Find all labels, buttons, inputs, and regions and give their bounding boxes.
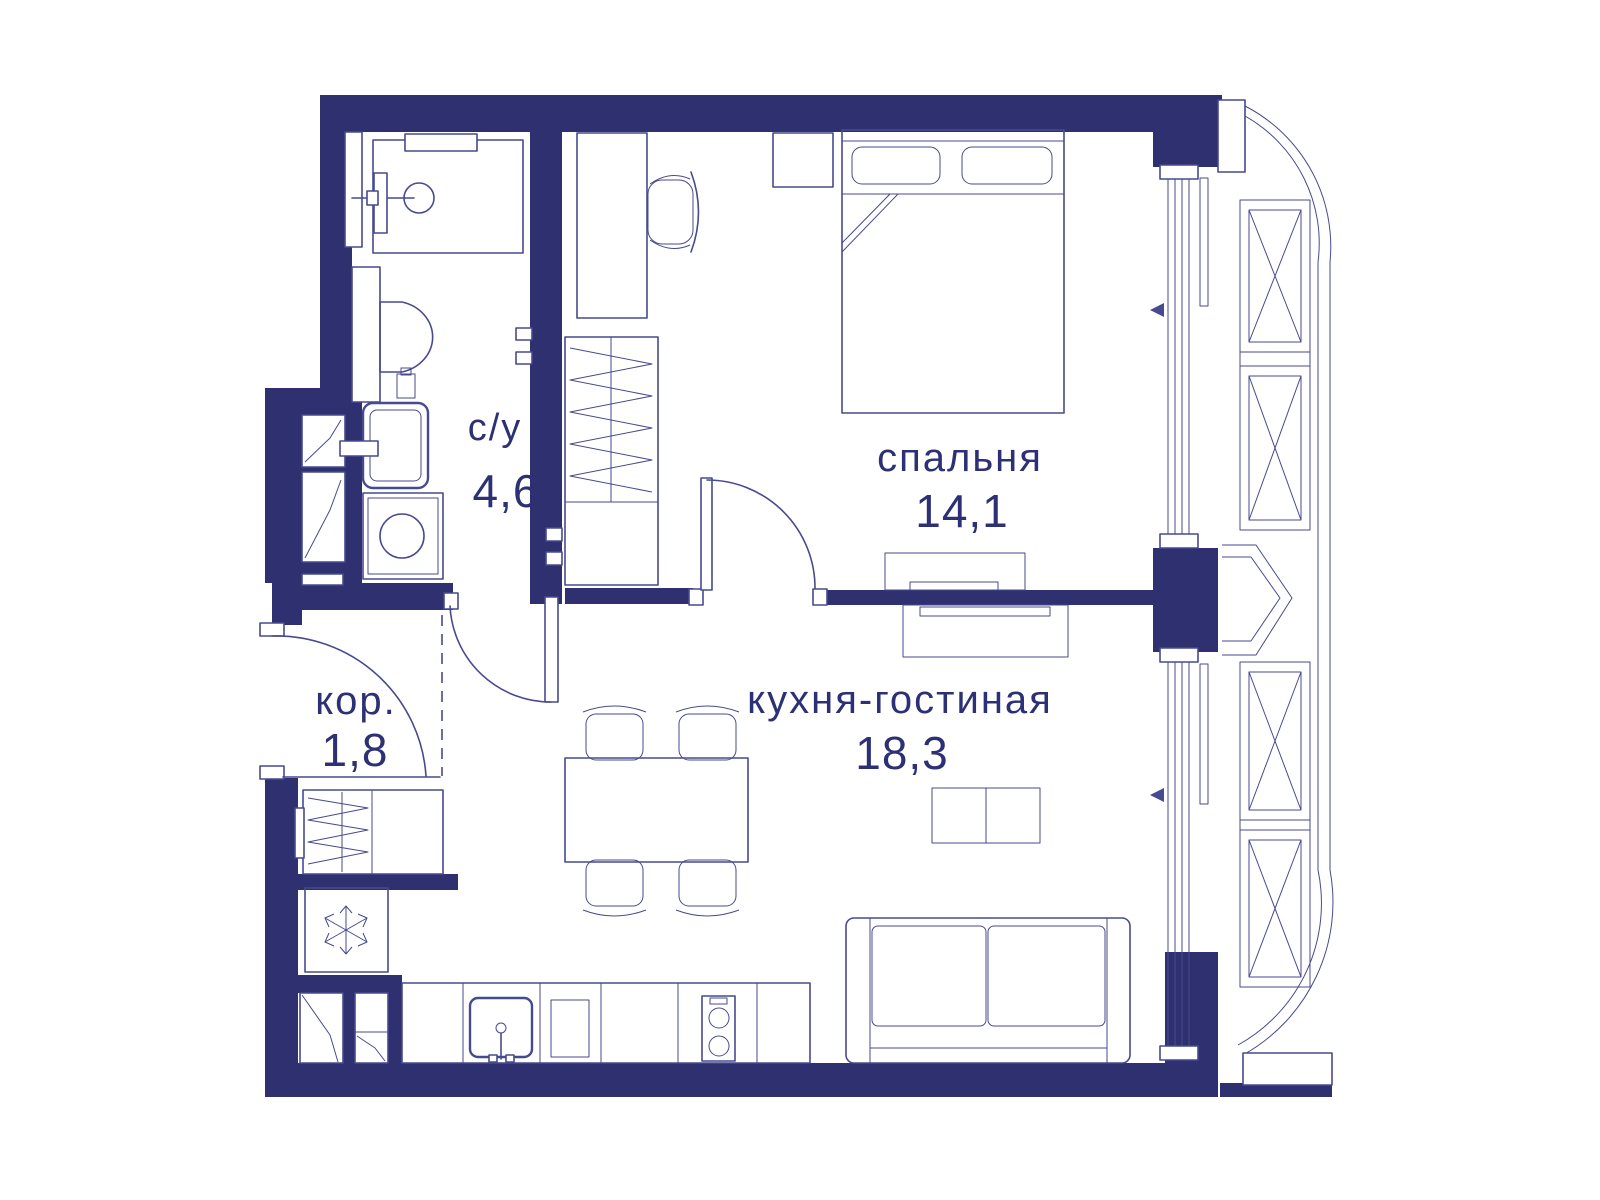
- wall-left-lower: [265, 778, 298, 1097]
- wall-bottom: [265, 1063, 1167, 1097]
- wall-under-closet: [565, 588, 693, 604]
- facade-arc-outer: [1243, 870, 1333, 1055]
- tv-console-bedroom: [885, 553, 1025, 590]
- wall-top: [320, 95, 1222, 132]
- bay-chevron: [1222, 545, 1292, 655]
- entry-door-jamb: [260, 766, 284, 779]
- balcony-slab: [1243, 1053, 1332, 1085]
- bed-outline: [842, 130, 1064, 413]
- window-cap: [1160, 648, 1198, 662]
- desk: [577, 133, 647, 318]
- chair-seat: [648, 180, 693, 244]
- tv-console-living: [903, 605, 1068, 657]
- bedroom-door-jamb: [813, 589, 827, 605]
- wall-top-right-step: [1153, 132, 1222, 167]
- wall-sleeve: [546, 528, 562, 541]
- toilet-bowl: [380, 302, 433, 372]
- facade-corner-post: [1218, 100, 1245, 172]
- wall-bottom-right-block: [1165, 952, 1218, 1097]
- chair-back: [583, 910, 646, 916]
- tv-console: [903, 605, 1068, 657]
- facade-panel: [1240, 830, 1310, 987]
- dining-table: [565, 758, 748, 862]
- bathroom-door-jamb: [444, 593, 458, 609]
- hangers-icon: [308, 798, 368, 864]
- vent-shaft-icon: [355, 993, 388, 1063]
- blanket-fold: [842, 194, 890, 243]
- bedroom-window: [1150, 165, 1208, 548]
- toilet: [352, 267, 433, 402]
- walls: [265, 95, 1332, 1097]
- wall-sleeve: [516, 352, 532, 364]
- faucet-base: [489, 1055, 497, 1062]
- dining-chair: [679, 714, 736, 760]
- coffee-table: [932, 788, 1040, 843]
- floor-plan: с/у 4,6 спальня 14,1 кухня-гостиная 18,3…: [0, 0, 1600, 1200]
- chair-back: [676, 706, 739, 712]
- bedroom-wardrobe: [565, 337, 658, 585]
- window-cap: [1160, 1046, 1198, 1060]
- corridor-wardrobe: [295, 790, 443, 874]
- sofa-cushion: [872, 926, 986, 1026]
- sofa: [846, 918, 1130, 1063]
- room-area-kitchen-living: 18,3: [855, 730, 949, 776]
- window-handle-icon: [1150, 788, 1164, 802]
- room-label-bedroom: спальня: [877, 438, 1043, 478]
- room-label-kitchen-living: кухня-гостиная: [747, 680, 1053, 720]
- room-label-corridor: кор.: [315, 681, 397, 721]
- window-cap: [1160, 165, 1198, 179]
- facade-arc-inner: [1245, 116, 1319, 262]
- sofa-cushion: [988, 926, 1105, 1026]
- washing-machine: [363, 493, 443, 579]
- tv-console: [885, 553, 1025, 590]
- wall-sleeve: [516, 328, 532, 340]
- window-handle-icon: [1150, 303, 1164, 317]
- wall-kitchen-block-right: [388, 993, 402, 1063]
- wall-tv-partition: [815, 590, 1153, 605]
- dining-chair: [586, 860, 643, 906]
- balcony: [1218, 100, 1333, 1085]
- fridge: [305, 888, 388, 972]
- tv-icon: [920, 607, 1050, 616]
- desk-chair: [648, 172, 699, 252]
- shower-mixer: [367, 191, 378, 205]
- shower: [345, 132, 523, 253]
- sink-faucet-icon: [340, 441, 378, 456]
- chair-back: [676, 910, 739, 916]
- faucet-base: [506, 1055, 514, 1062]
- wall-right-middle-block: [1153, 548, 1218, 652]
- entry-door-jamb: [260, 623, 284, 636]
- accessory-box: [397, 374, 415, 398]
- window-sash: [1200, 664, 1208, 804]
- shower-wall-panel: [345, 132, 362, 247]
- blanket-fold: [842, 194, 898, 252]
- window-sash: [1200, 178, 1208, 306]
- bedroom-door-leaf: [701, 478, 712, 590]
- nightstand: [773, 133, 833, 187]
- wardrobe-outline: [303, 790, 443, 874]
- shower-entry-step: [405, 134, 477, 151]
- pillow: [962, 147, 1052, 184]
- wall-niche: [295, 808, 304, 858]
- kitchen-furniture: [402, 983, 810, 1063]
- washing-machine-body: [363, 493, 443, 579]
- dining-chair: [586, 714, 643, 760]
- chair-back: [691, 172, 699, 252]
- bathroom-door-leaf: [545, 597, 558, 702]
- washing-machine-inner: [368, 498, 438, 574]
- facade-arc-outer: [1245, 106, 1331, 262]
- wall-notch: [302, 574, 343, 585]
- bathroom-door-swing-arc: [450, 606, 551, 702]
- pillow: [852, 147, 940, 184]
- facade-panel: [1240, 366, 1310, 530]
- wall-sleeve: [546, 552, 562, 565]
- room-area-corridor: 1,8: [322, 727, 389, 773]
- snowflake-icon: [325, 906, 367, 954]
- shower-tray: [373, 140, 523, 253]
- room-area-bedroom: 14,1: [915, 488, 1009, 534]
- bedroom-door-jamb: [689, 589, 703, 605]
- dining-chair: [679, 860, 736, 906]
- bed: [842, 130, 1064, 413]
- facade-panel: [1240, 662, 1310, 820]
- washing-machine-drum-icon: [380, 514, 424, 558]
- chair-back: [583, 706, 646, 712]
- window-cap: [1160, 534, 1198, 548]
- wall-kitchen-block-mid: [343, 993, 355, 1063]
- wall-kitchen-block-top: [298, 975, 402, 993]
- tv-icon: [910, 582, 998, 590]
- facade-panel: [1240, 200, 1310, 352]
- bedroom-door-swing-arc: [707, 480, 815, 588]
- dining-set: [565, 706, 748, 916]
- room-area-bathroom: 4,6: [473, 468, 540, 514]
- wall-entry-stub: [272, 583, 302, 625]
- room-label-bathroom: с/у: [468, 409, 523, 447]
- toilet-cistern: [352, 267, 380, 402]
- floor-plan-drawing: [0, 0, 1600, 1200]
- vent-shaft-icon: [300, 993, 343, 1063]
